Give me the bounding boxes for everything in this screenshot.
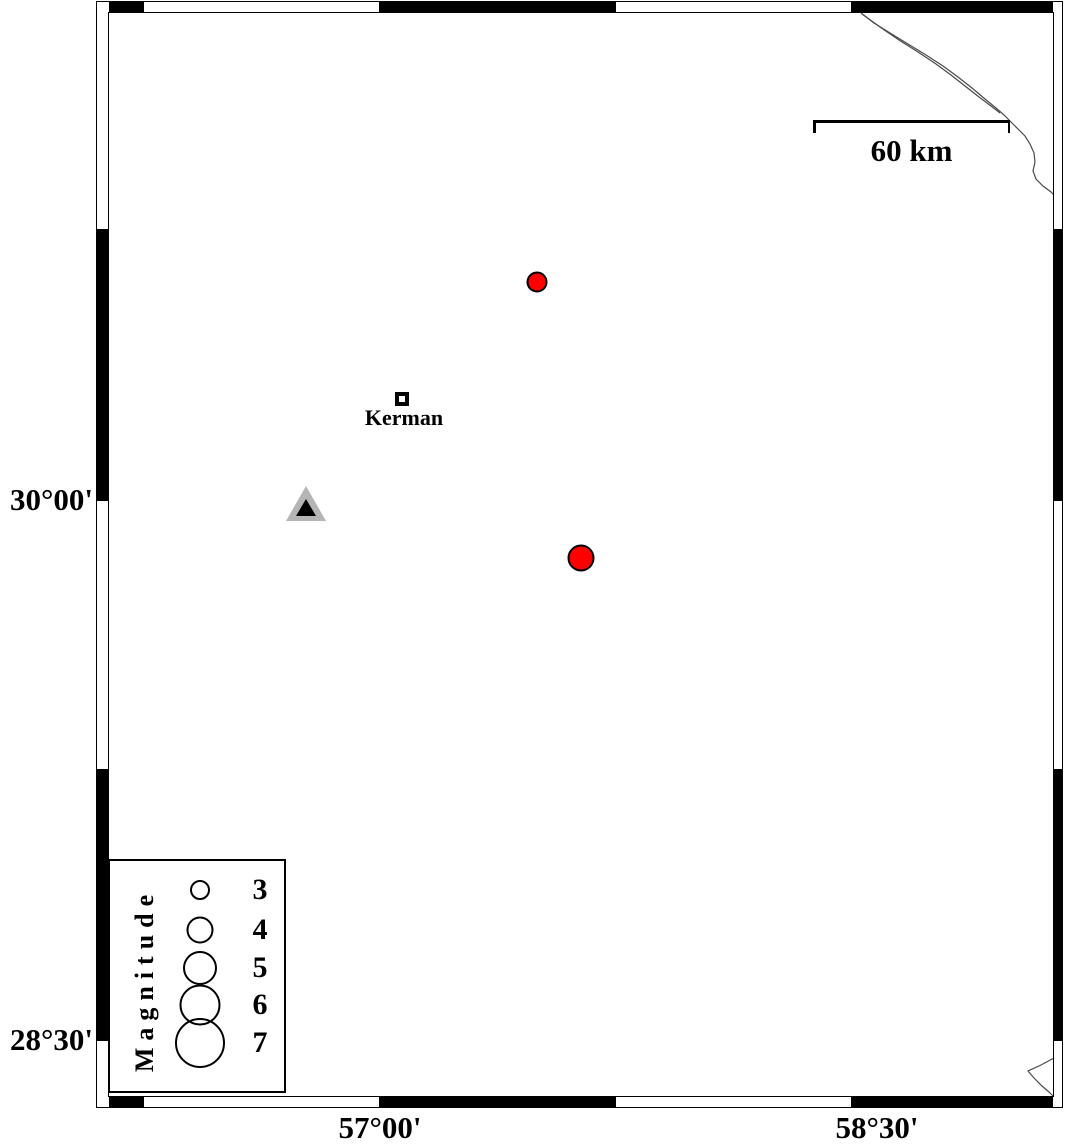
longitude-label: 58°30'	[835, 1110, 918, 1144]
scale-bar-line	[813, 120, 1010, 123]
longitude-label: 57°00'	[338, 1110, 421, 1144]
seismicity-map: 30°00'28°30'57°00'58°30' 60 km Kerman Ma…	[0, 0, 1066, 1144]
latitude-label: 30°00'	[0, 481, 93, 519]
magnitude-legend: Magnitude 34567	[108, 859, 286, 1093]
legend-magnitude-value: 6	[253, 988, 268, 1022]
legend-magnitude-value: 4	[253, 913, 268, 947]
legend-magnitude-circle	[190, 880, 210, 900]
legend-title: Magnitude	[130, 888, 160, 1072]
earthquake-epicenter-marker	[527, 272, 548, 293]
scale-bar: 60 km	[813, 120, 1010, 180]
scale-bar-right-tick	[1008, 120, 1011, 133]
city-marker-square	[395, 392, 409, 406]
legend-magnitude-circle	[175, 1018, 225, 1068]
legend-magnitude-circle	[187, 917, 214, 944]
scale-bar-label: 60 km	[813, 133, 1010, 169]
legend-magnitude-value: 5	[253, 951, 268, 985]
scale-bar-left-tick	[813, 120, 816, 133]
legend-magnitude-circle	[183, 951, 217, 985]
legend-magnitude-value: 7	[253, 1026, 268, 1060]
latitude-label: 28°30'	[0, 1021, 93, 1059]
earthquake-epicenter-marker	[568, 545, 595, 572]
city-label: Kerman	[365, 405, 443, 431]
legend-magnitude-value: 3	[253, 873, 268, 907]
